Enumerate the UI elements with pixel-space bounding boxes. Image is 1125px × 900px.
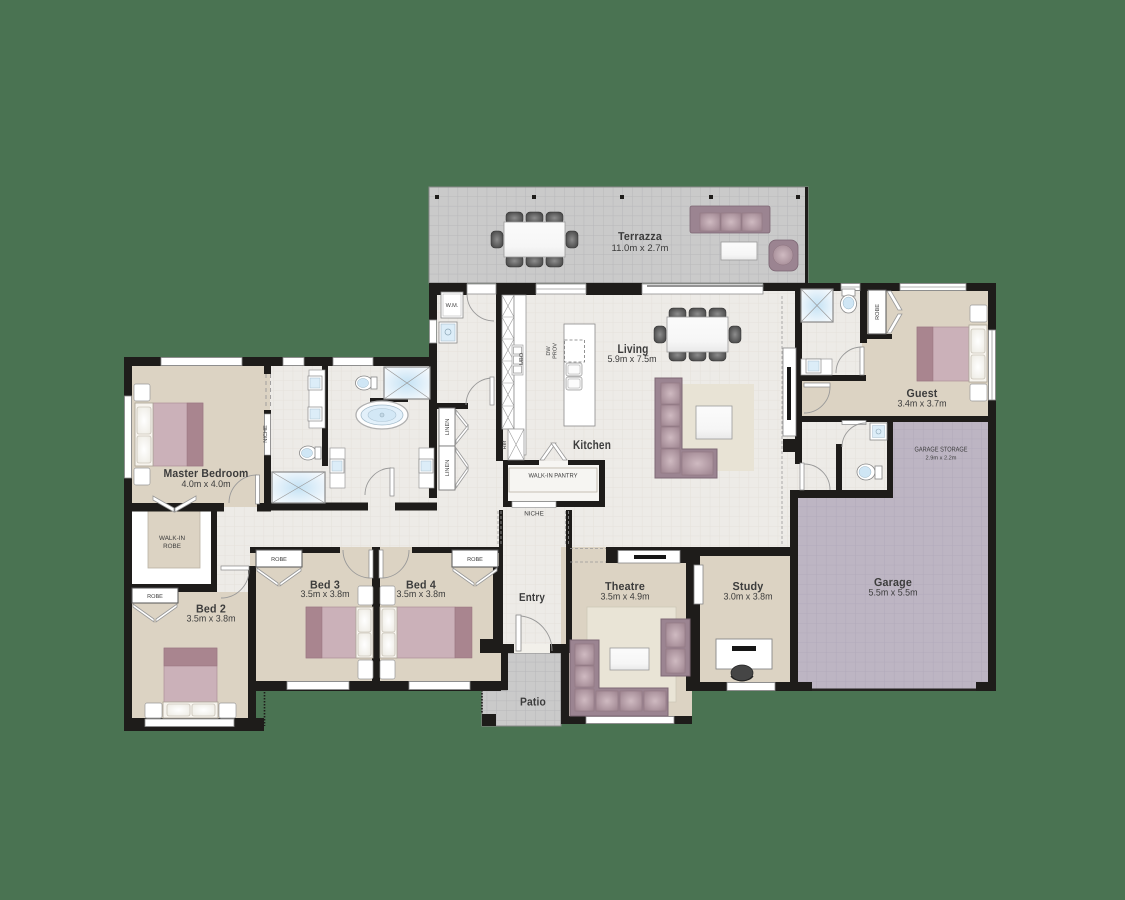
svg-text:3.5m x 3.8m: 3.5m x 3.8m bbox=[301, 589, 350, 600]
svg-text:ROBE: ROBE bbox=[875, 304, 881, 320]
svg-text:4.0m x 4.0m: 4.0m x 4.0m bbox=[182, 479, 231, 490]
svg-text:ROBE: ROBE bbox=[467, 557, 483, 563]
svg-text:3.5m x 3.8m: 3.5m x 3.8m bbox=[397, 589, 446, 600]
svg-text:3.0m x 3.8m: 3.0m x 3.8m bbox=[724, 592, 773, 603]
svg-text:NICHE: NICHE bbox=[524, 511, 544, 518]
svg-text:ROBE: ROBE bbox=[163, 543, 181, 550]
svg-text:2.9m x 2.2m: 2.9m x 2.2m bbox=[926, 455, 957, 462]
svg-text:LINEN: LINEN bbox=[445, 419, 451, 435]
svg-text:W.M.: W.M. bbox=[446, 303, 459, 309]
svg-text:5.9m x 7.5m: 5.9m x 7.5m bbox=[608, 354, 657, 365]
svg-text:NICHE: NICHE bbox=[263, 425, 269, 443]
svg-text:Ref: Ref bbox=[501, 440, 508, 449]
svg-text:UBO: UBO bbox=[519, 352, 525, 365]
svg-text:Entry: Entry bbox=[519, 592, 545, 604]
svg-text:ROBE: ROBE bbox=[147, 594, 163, 600]
svg-text:Terrazza: Terrazza bbox=[618, 231, 662, 243]
svg-text:Patio: Patio bbox=[520, 697, 546, 709]
svg-text:WALK-IN PANTRY: WALK-IN PANTRY bbox=[529, 473, 579, 480]
svg-text:3.5m x 4.9m: 3.5m x 4.9m bbox=[601, 592, 650, 603]
svg-text:5.5m x 5.5m: 5.5m x 5.5m bbox=[869, 588, 918, 599]
svg-text:11.0m x 2.7m: 11.0m x 2.7m bbox=[612, 243, 669, 254]
svg-text:GARAGE STORAGE: GARAGE STORAGE bbox=[915, 447, 968, 454]
svg-text:Kitchen: Kitchen bbox=[573, 438, 611, 452]
svg-text:ROBE: ROBE bbox=[271, 557, 287, 563]
svg-text:3.4m x 3.7m: 3.4m x 3.7m bbox=[898, 399, 947, 410]
svg-text:3.5m x 3.8m: 3.5m x 3.8m bbox=[187, 614, 236, 625]
svg-text:LINEN: LINEN bbox=[445, 460, 451, 476]
svg-text:WALK-IN: WALK-IN bbox=[159, 535, 185, 542]
